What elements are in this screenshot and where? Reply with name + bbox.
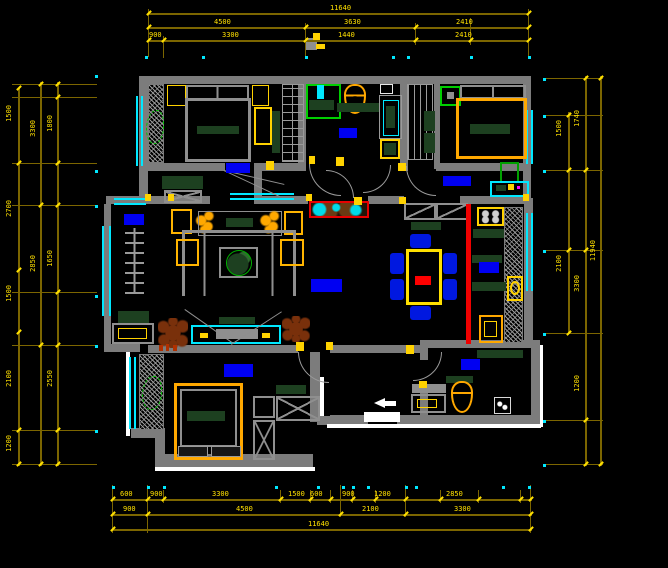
label-balcony [124, 214, 144, 225]
chair-desk [500, 162, 519, 183]
dimension-text: 1500 [6, 105, 13, 122]
extension-dot [543, 250, 546, 253]
wall-top [145, 76, 531, 84]
sink-bath1 [380, 84, 393, 94]
dimension-text: 2100 [556, 255, 563, 272]
wardrobe3-shelf [276, 385, 306, 394]
desk-item-pink [517, 186, 520, 189]
dimension-text: 2100 [6, 370, 13, 387]
dimension-text: 2100 [362, 506, 379, 513]
window-bed2-right [526, 110, 533, 164]
wall-bed1-bottom-a [148, 163, 225, 171]
wardrobe2-a [424, 111, 435, 131]
dimension-line [545, 170, 603, 171]
dimension-line [600, 76, 602, 466]
dimension-text: 3300 [30, 120, 37, 137]
extension-dot [147, 486, 150, 489]
kitchen-counter-c [472, 282, 506, 291]
kitchen-counter-a [473, 229, 504, 238]
sofa-cushion [226, 218, 253, 227]
shower-shelf [309, 100, 334, 110]
arc-hall [326, 170, 354, 198]
bench-balcony [118, 311, 149, 323]
extension-dot [543, 420, 546, 423]
arc-bath2 [413, 352, 442, 381]
extension-dot [202, 56, 205, 59]
kitchen-sink-basin [510, 281, 520, 295]
wall-dining-top [460, 196, 531, 204]
section-marker-base [316, 44, 325, 49]
label-living-room [311, 279, 342, 292]
dimension-text: 3300 [212, 491, 229, 498]
vanity-bath1 [337, 103, 379, 112]
desk-item-green [496, 185, 506, 191]
door-mark [168, 194, 174, 201]
door-mark [296, 342, 304, 351]
tv-foot-right [262, 333, 270, 338]
dimension-text: 3630 [344, 19, 361, 26]
dimension-text: 1500 [556, 120, 563, 137]
dimension-text: 11640 [308, 521, 329, 528]
extension-dot [415, 486, 418, 489]
shoe-cabinet-shelf [411, 222, 441, 230]
dimension-line [545, 420, 603, 421]
entry-arrow-tail [385, 401, 396, 406]
dimension-text: 2700 [6, 200, 13, 217]
shoe-cabinet-b [436, 203, 468, 220]
fan-inner [447, 92, 454, 99]
dimension-text: 900 [342, 491, 355, 498]
dimension-text: 3300 [454, 506, 471, 513]
dimension-text: 600 [310, 491, 323, 498]
fridge-inner [484, 321, 497, 337]
label-kitchen [479, 262, 499, 273]
bath2-vanity [412, 384, 446, 393]
nightstand-left [167, 85, 186, 106]
extension-dot [392, 56, 395, 59]
door-mark [406, 345, 414, 354]
dining-chair-left-1 [390, 253, 404, 274]
extension-dot [543, 333, 546, 336]
tv-foot-left [200, 333, 208, 338]
door-mark [399, 197, 406, 204]
extension-dot [367, 486, 370, 489]
door-mark [309, 156, 315, 164]
desk-item-yellow [508, 184, 514, 190]
table-balcony-inner [118, 328, 147, 339]
hatch-kitchen-floor [504, 207, 523, 343]
dimension-text: 1500 [6, 285, 13, 302]
washer-bath1-drum [384, 143, 396, 155]
dimension-line [112, 499, 532, 501]
dimension-line [40, 82, 42, 466]
dimension-line [545, 464, 603, 465]
dining-chair-left-2 [390, 279, 404, 300]
arc-bed3 [298, 352, 329, 383]
stove [477, 207, 504, 226]
dimension-text: 3300 [222, 32, 239, 39]
extension-dot [317, 486, 320, 489]
tree-balcony [125, 228, 144, 294]
dimension-text: 1200 [574, 375, 581, 392]
washer-bath2 [494, 397, 511, 414]
wall-speck [166, 344, 169, 351]
door-mark [336, 157, 344, 166]
dimension-text: 3300 [574, 275, 581, 292]
label-bedroom-2 [443, 176, 471, 186]
white-entry-bottom [327, 424, 541, 428]
window-bed3-left [129, 357, 136, 429]
bed2-pillow [470, 124, 510, 134]
dimension-line [57, 82, 59, 466]
extension-dot [405, 486, 408, 489]
dimension-line [112, 529, 532, 531]
bed3-foot-a [178, 446, 208, 457]
label-bedroom-3 [224, 364, 253, 377]
wall-entry-bottom-r [397, 415, 540, 424]
label-bedroom-master [226, 163, 250, 173]
door-mark [523, 194, 529, 201]
dimension-text: 900 [149, 32, 162, 39]
dimension-text: 4500 [214, 19, 231, 26]
dimension-line [545, 333, 603, 334]
dimension-text: 2850 [30, 255, 37, 272]
cabinet-strip-green [272, 111, 280, 153]
bed1-pillow [197, 126, 239, 134]
dining-chair-right-2 [443, 279, 457, 300]
dimension-text: 11640 [330, 5, 351, 12]
extension-dot [352, 486, 355, 489]
wardrobe3-xv [253, 420, 275, 460]
arc-bed2 [406, 166, 436, 196]
bath2-basin [417, 399, 437, 408]
closet-bed1 [282, 84, 304, 162]
floor-plan-canvas[interactable]: 1164045003630241090033001440241060090033… [0, 0, 668, 568]
wall-entry-bottom-l [330, 415, 368, 424]
extension-dot [112, 486, 115, 489]
dimension-text: 11940 [590, 240, 597, 261]
side-table-left [176, 239, 199, 266]
wardrobe3-x [276, 396, 320, 421]
coffee-plant [226, 250, 252, 276]
side-table-right [280, 239, 304, 266]
dimension-line [545, 78, 603, 79]
dimension-text: 900 [150, 491, 163, 498]
extension-dot [543, 170, 546, 173]
wall-balcony-bottom [104, 344, 140, 352]
label-bathroom-1 [339, 128, 357, 138]
shower-head [317, 85, 324, 99]
dimension-text: 1200 [6, 435, 13, 452]
extension-dot [305, 56, 308, 59]
window-balcony-left [102, 226, 111, 316]
plant-living-right [282, 316, 310, 342]
extension-dot [275, 486, 278, 489]
dimension-text: 1440 [338, 32, 355, 39]
dimension-line [112, 514, 532, 516]
dimension-text: 2410 [456, 19, 473, 26]
wall-speck [173, 345, 177, 351]
extension-dot [502, 486, 505, 489]
shoe-cabinet-a [404, 203, 436, 220]
extension-dot [543, 464, 546, 467]
plant-living-left [158, 318, 188, 348]
window-kitchen-right [526, 213, 533, 291]
extension-dot [163, 486, 166, 489]
dimension-text: 900 [123, 506, 136, 513]
dimension-text: 2850 [446, 491, 463, 498]
door-mark [326, 342, 333, 350]
dimension-line [148, 13, 528, 15]
window-balcony-top [114, 198, 146, 205]
dimension-line [568, 112, 570, 334]
white-bath2-right [540, 345, 543, 427]
dimension-line [528, 9, 529, 57]
extension-dot [543, 78, 546, 81]
dining-chair-top [410, 234, 431, 248]
door-mark [419, 381, 427, 388]
mirror-green [386, 106, 395, 128]
extension-dot [95, 170, 98, 173]
bed2-headboard [460, 85, 526, 99]
dimension-text: 1650 [47, 250, 54, 267]
dimension-line [18, 88, 20, 466]
door-mark [398, 163, 406, 171]
entry-arrow [374, 398, 385, 408]
dresser-bed1 [254, 107, 272, 145]
section-marker-flag [313, 33, 320, 40]
extension-dot [528, 56, 531, 59]
nightstand-right [252, 85, 269, 106]
door-mark [145, 194, 151, 201]
dining-centerpiece [415, 276, 431, 285]
door-mark [266, 161, 274, 170]
entry-threshold [364, 412, 400, 422]
media-shelf [219, 317, 255, 324]
dimension-line [148, 27, 528, 29]
dimension-text: 2410 [455, 32, 472, 39]
extension-dot [342, 486, 345, 489]
bed3-foot-b [211, 446, 241, 457]
dimension-text: 1800 [47, 115, 54, 132]
extension-dot [95, 295, 98, 298]
dimension-text: 1200 [374, 491, 391, 498]
extension-dot [407, 56, 410, 59]
extension-dot [95, 430, 98, 433]
wall-speck [159, 345, 163, 351]
bath2-counter-a [477, 350, 523, 358]
extension-dot [95, 205, 98, 208]
extension-dot [470, 56, 473, 59]
dimension-text: 1500 [288, 491, 305, 498]
dimension-text: 600 [120, 491, 133, 498]
wardrobe2-b [424, 133, 435, 153]
extension-dot [528, 486, 531, 489]
dimension-line [147, 485, 148, 533]
dimension-text: 4500 [236, 506, 253, 513]
dimension-text: 1740 [574, 110, 581, 127]
wall-bath2-right [531, 345, 540, 424]
wardrobe3-cell [253, 396, 275, 418]
dining-chair-right-1 [443, 253, 457, 274]
toilet-bath2 [451, 381, 473, 413]
glass-partition-hall [230, 193, 294, 200]
window-bed1-left [136, 96, 143, 166]
kitchen-divider-red [466, 204, 471, 344]
dimension-text: 2550 [47, 370, 54, 387]
dimension-line [585, 76, 587, 466]
white-bed3-bottom [155, 467, 315, 471]
extension-dot [95, 345, 98, 348]
label-bathroom-2 [461, 359, 480, 370]
arc-bath1-b [363, 165, 391, 193]
dining-chair-bottom [410, 306, 431, 320]
sideboard-top [162, 176, 203, 189]
bed3-pillow [187, 411, 225, 421]
extension-dot [95, 75, 98, 78]
extension-dot [145, 56, 148, 59]
door-mark [306, 194, 312, 201]
extension-dot [543, 115, 546, 118]
door-mark [354, 197, 362, 205]
